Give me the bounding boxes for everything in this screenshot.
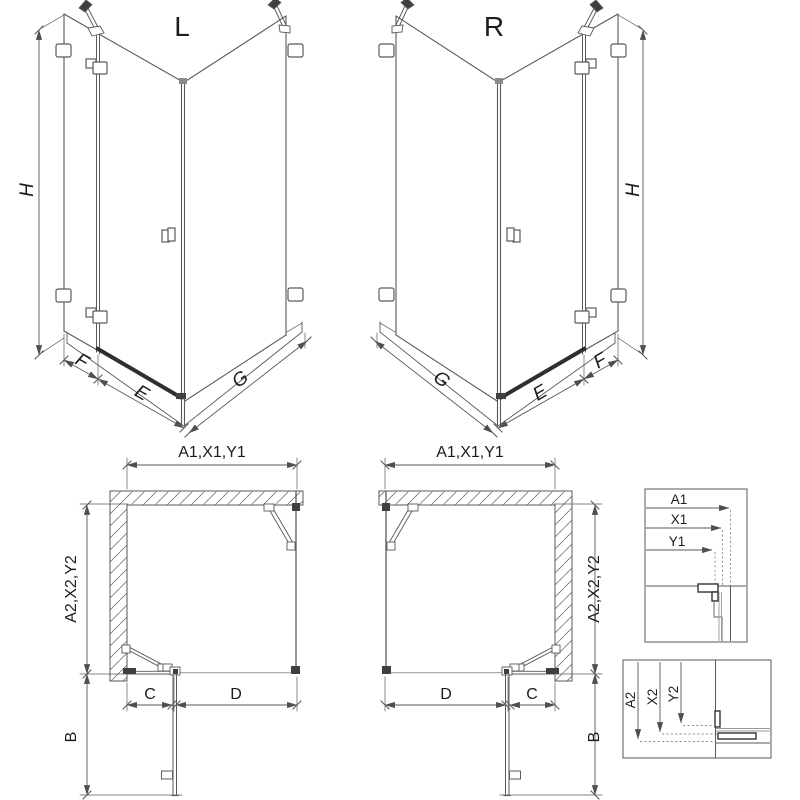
plan-left-label-door-segment: D: [230, 686, 242, 703]
iso-left-label-height: H: [17, 183, 38, 197]
iso-right-label-fixed: F: [590, 349, 612, 374]
detail-box-bottom: [623, 660, 771, 758]
detail-top-label-x1: X1: [671, 512, 688, 527]
plan-right-label-top-width: A1,X1,Y1: [436, 444, 504, 461]
shower-enclosure-drawing: L R H F E G H F E G A1,X1,Y1 A2,X2,Y2 C …: [0, 0, 800, 800]
detail-top-label-a1: A1: [671, 492, 688, 507]
detail-top-label-y1: Y1: [669, 534, 686, 549]
plan-left-label-fixed-segment: C: [144, 686, 156, 703]
plan-left-label-swing-depth: B: [63, 732, 80, 743]
plan-left-label-side-depth: A2,X2,Y2: [63, 555, 80, 623]
plan-right-label-swing-depth: B: [586, 732, 603, 743]
plan-right-label-fixed-segment: C: [526, 686, 538, 703]
title-right-variant: R: [484, 11, 504, 42]
iso-view-right: [371, 0, 647, 437]
plan-right-label-side-depth: A2,X2,Y2: [586, 555, 603, 623]
technical-drawing-page: L R H F E G H F E G A1,X1,Y1 A2,X2,Y2 C …: [0, 0, 800, 800]
detail-bottom-label-y2: Y2: [666, 686, 681, 703]
plan-right-label-door-segment: D: [440, 686, 452, 703]
plan-left-label-top-width: A1,X1,Y1: [178, 444, 246, 461]
iso-right-label-height: H: [623, 183, 644, 197]
iso-view-left: [35, 0, 311, 437]
detail-bottom-label-a2: A2: [623, 692, 638, 709]
detail-bottom-label-x2: X2: [645, 689, 660, 706]
iso-left-label-fixed: F: [71, 349, 93, 374]
title-left-variant: L: [174, 11, 190, 42]
detail-box-top: [645, 489, 747, 642]
